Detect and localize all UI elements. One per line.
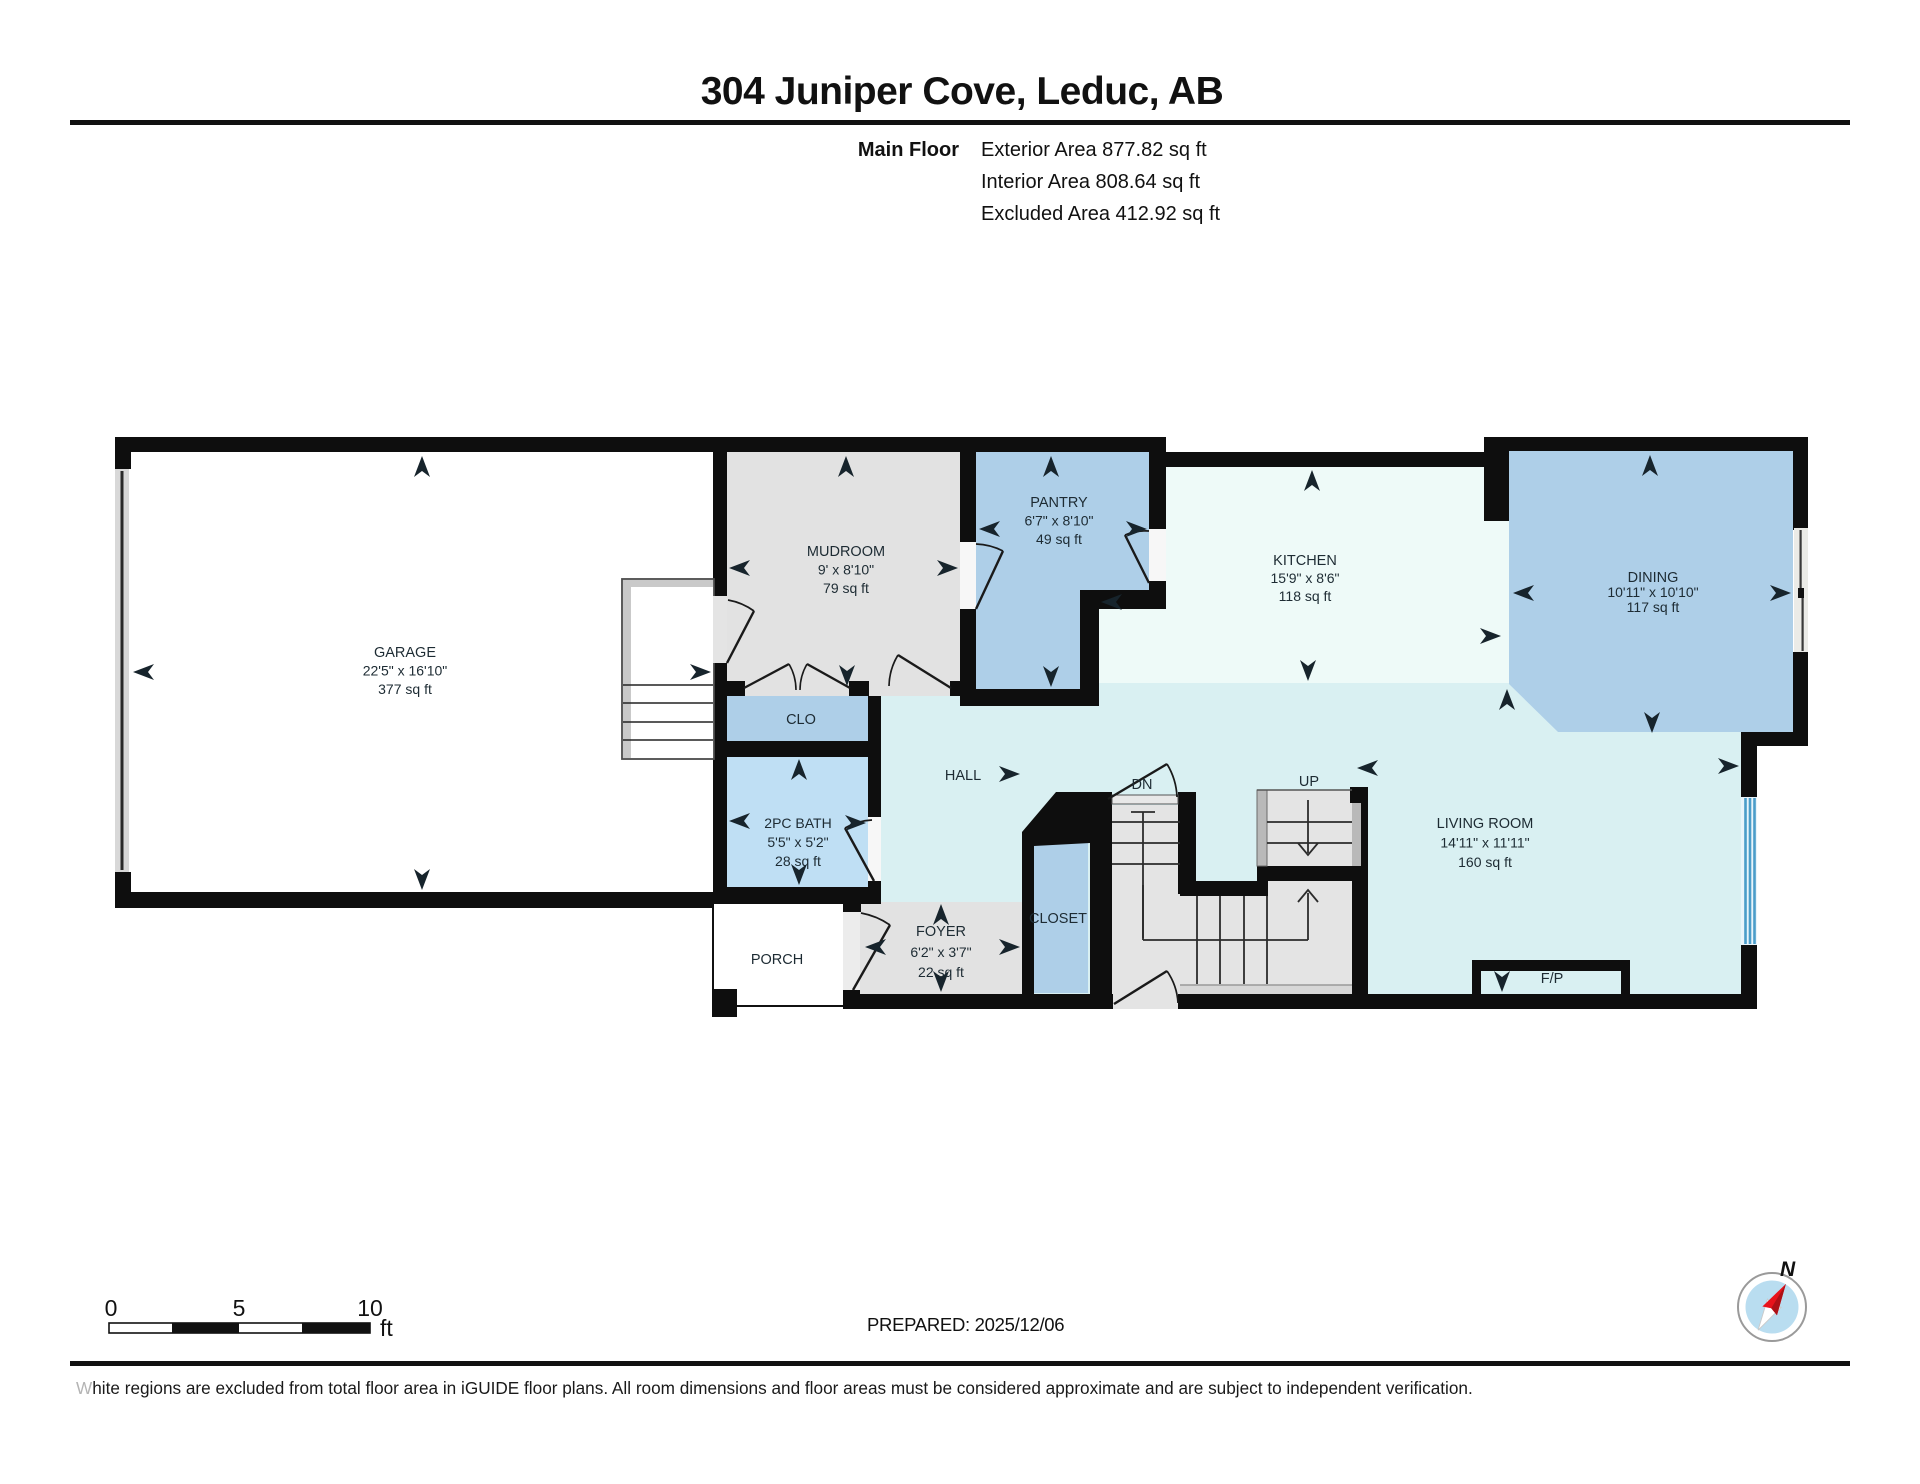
svg-text:377 sq ft: 377 sq ft bbox=[378, 681, 432, 697]
svg-text:DN: DN bbox=[1132, 777, 1153, 793]
svg-text:LIVING ROOM: LIVING ROOM bbox=[1437, 816, 1534, 832]
svg-text:PORCH: PORCH bbox=[751, 952, 803, 968]
svg-text:Interior Area 808.64 sq ft: Interior Area 808.64 sq ft bbox=[981, 171, 1200, 193]
svg-text:14'11" x 11'11": 14'11" x 11'11" bbox=[1440, 835, 1529, 851]
svg-text:160 sq ft: 160 sq ft bbox=[1458, 854, 1512, 870]
svg-text:PANTRY: PANTRY bbox=[1030, 495, 1088, 511]
svg-text:28 sq ft: 28 sq ft bbox=[775, 853, 821, 869]
svg-text:Exterior Area 877.82 sq ft: Exterior Area 877.82 sq ft bbox=[981, 139, 1207, 161]
svg-text:22 sq ft: 22 sq ft bbox=[918, 964, 964, 980]
svg-text:118 sq ft: 118 sq ft bbox=[1279, 588, 1332, 604]
svg-text:79 sq ft: 79 sq ft bbox=[823, 580, 869, 596]
svg-text:49 sq ft: 49 sq ft bbox=[1036, 531, 1082, 547]
svg-text:2PC BATH: 2PC BATH bbox=[764, 815, 831, 831]
svg-text:0: 0 bbox=[105, 1295, 118, 1321]
svg-text:10: 10 bbox=[357, 1295, 383, 1321]
svg-text:N: N bbox=[1780, 1258, 1796, 1281]
svg-text:5'5" x 5'2": 5'5" x 5'2" bbox=[767, 834, 828, 850]
svg-text:PREPARED: 2025/12/06: PREPARED: 2025/12/06 bbox=[867, 1314, 1064, 1335]
svg-text:5: 5 bbox=[233, 1295, 246, 1321]
svg-text:Excluded Area 412.92 sq ft: Excluded Area 412.92 sq ft bbox=[981, 203, 1220, 225]
svg-text:CLO: CLO bbox=[786, 712, 816, 728]
svg-text:9' x 8'10": 9' x 8'10" bbox=[818, 562, 874, 578]
svg-text:22'5" x 16'10": 22'5" x 16'10" bbox=[363, 663, 448, 679]
svg-text:117 sq ft: 117 sq ft bbox=[1627, 599, 1680, 615]
svg-text:304 Juniper Cove, Leduc, AB: 304 Juniper Cove, Leduc, AB bbox=[701, 70, 1224, 113]
svg-text:UP: UP bbox=[1299, 774, 1319, 790]
svg-text:FOYER: FOYER bbox=[916, 924, 966, 940]
svg-text:6'2" x 3'7": 6'2" x 3'7" bbox=[910, 944, 971, 960]
svg-text:MUDROOM: MUDROOM bbox=[807, 544, 885, 560]
svg-text:F/P: F/P bbox=[1541, 971, 1564, 987]
svg-text:GARAGE: GARAGE bbox=[374, 645, 436, 661]
svg-text:6'7" x 8'10": 6'7" x 8'10" bbox=[1025, 513, 1094, 529]
svg-text:ft: ft bbox=[380, 1315, 393, 1341]
svg-text:White regions are excluded fro: White regions are excluded from total fl… bbox=[76, 1378, 1473, 1398]
svg-text:15'9" x 8'6": 15'9" x 8'6" bbox=[1271, 570, 1340, 586]
svg-text:HALL: HALL bbox=[945, 768, 981, 784]
svg-text:Main Floor: Main Floor bbox=[858, 139, 959, 161]
svg-text:KITCHEN: KITCHEN bbox=[1273, 553, 1337, 569]
svg-text:CLOSET: CLOSET bbox=[1029, 911, 1087, 927]
svg-text:10'11" x 10'10": 10'11" x 10'10" bbox=[1607, 584, 1698, 600]
